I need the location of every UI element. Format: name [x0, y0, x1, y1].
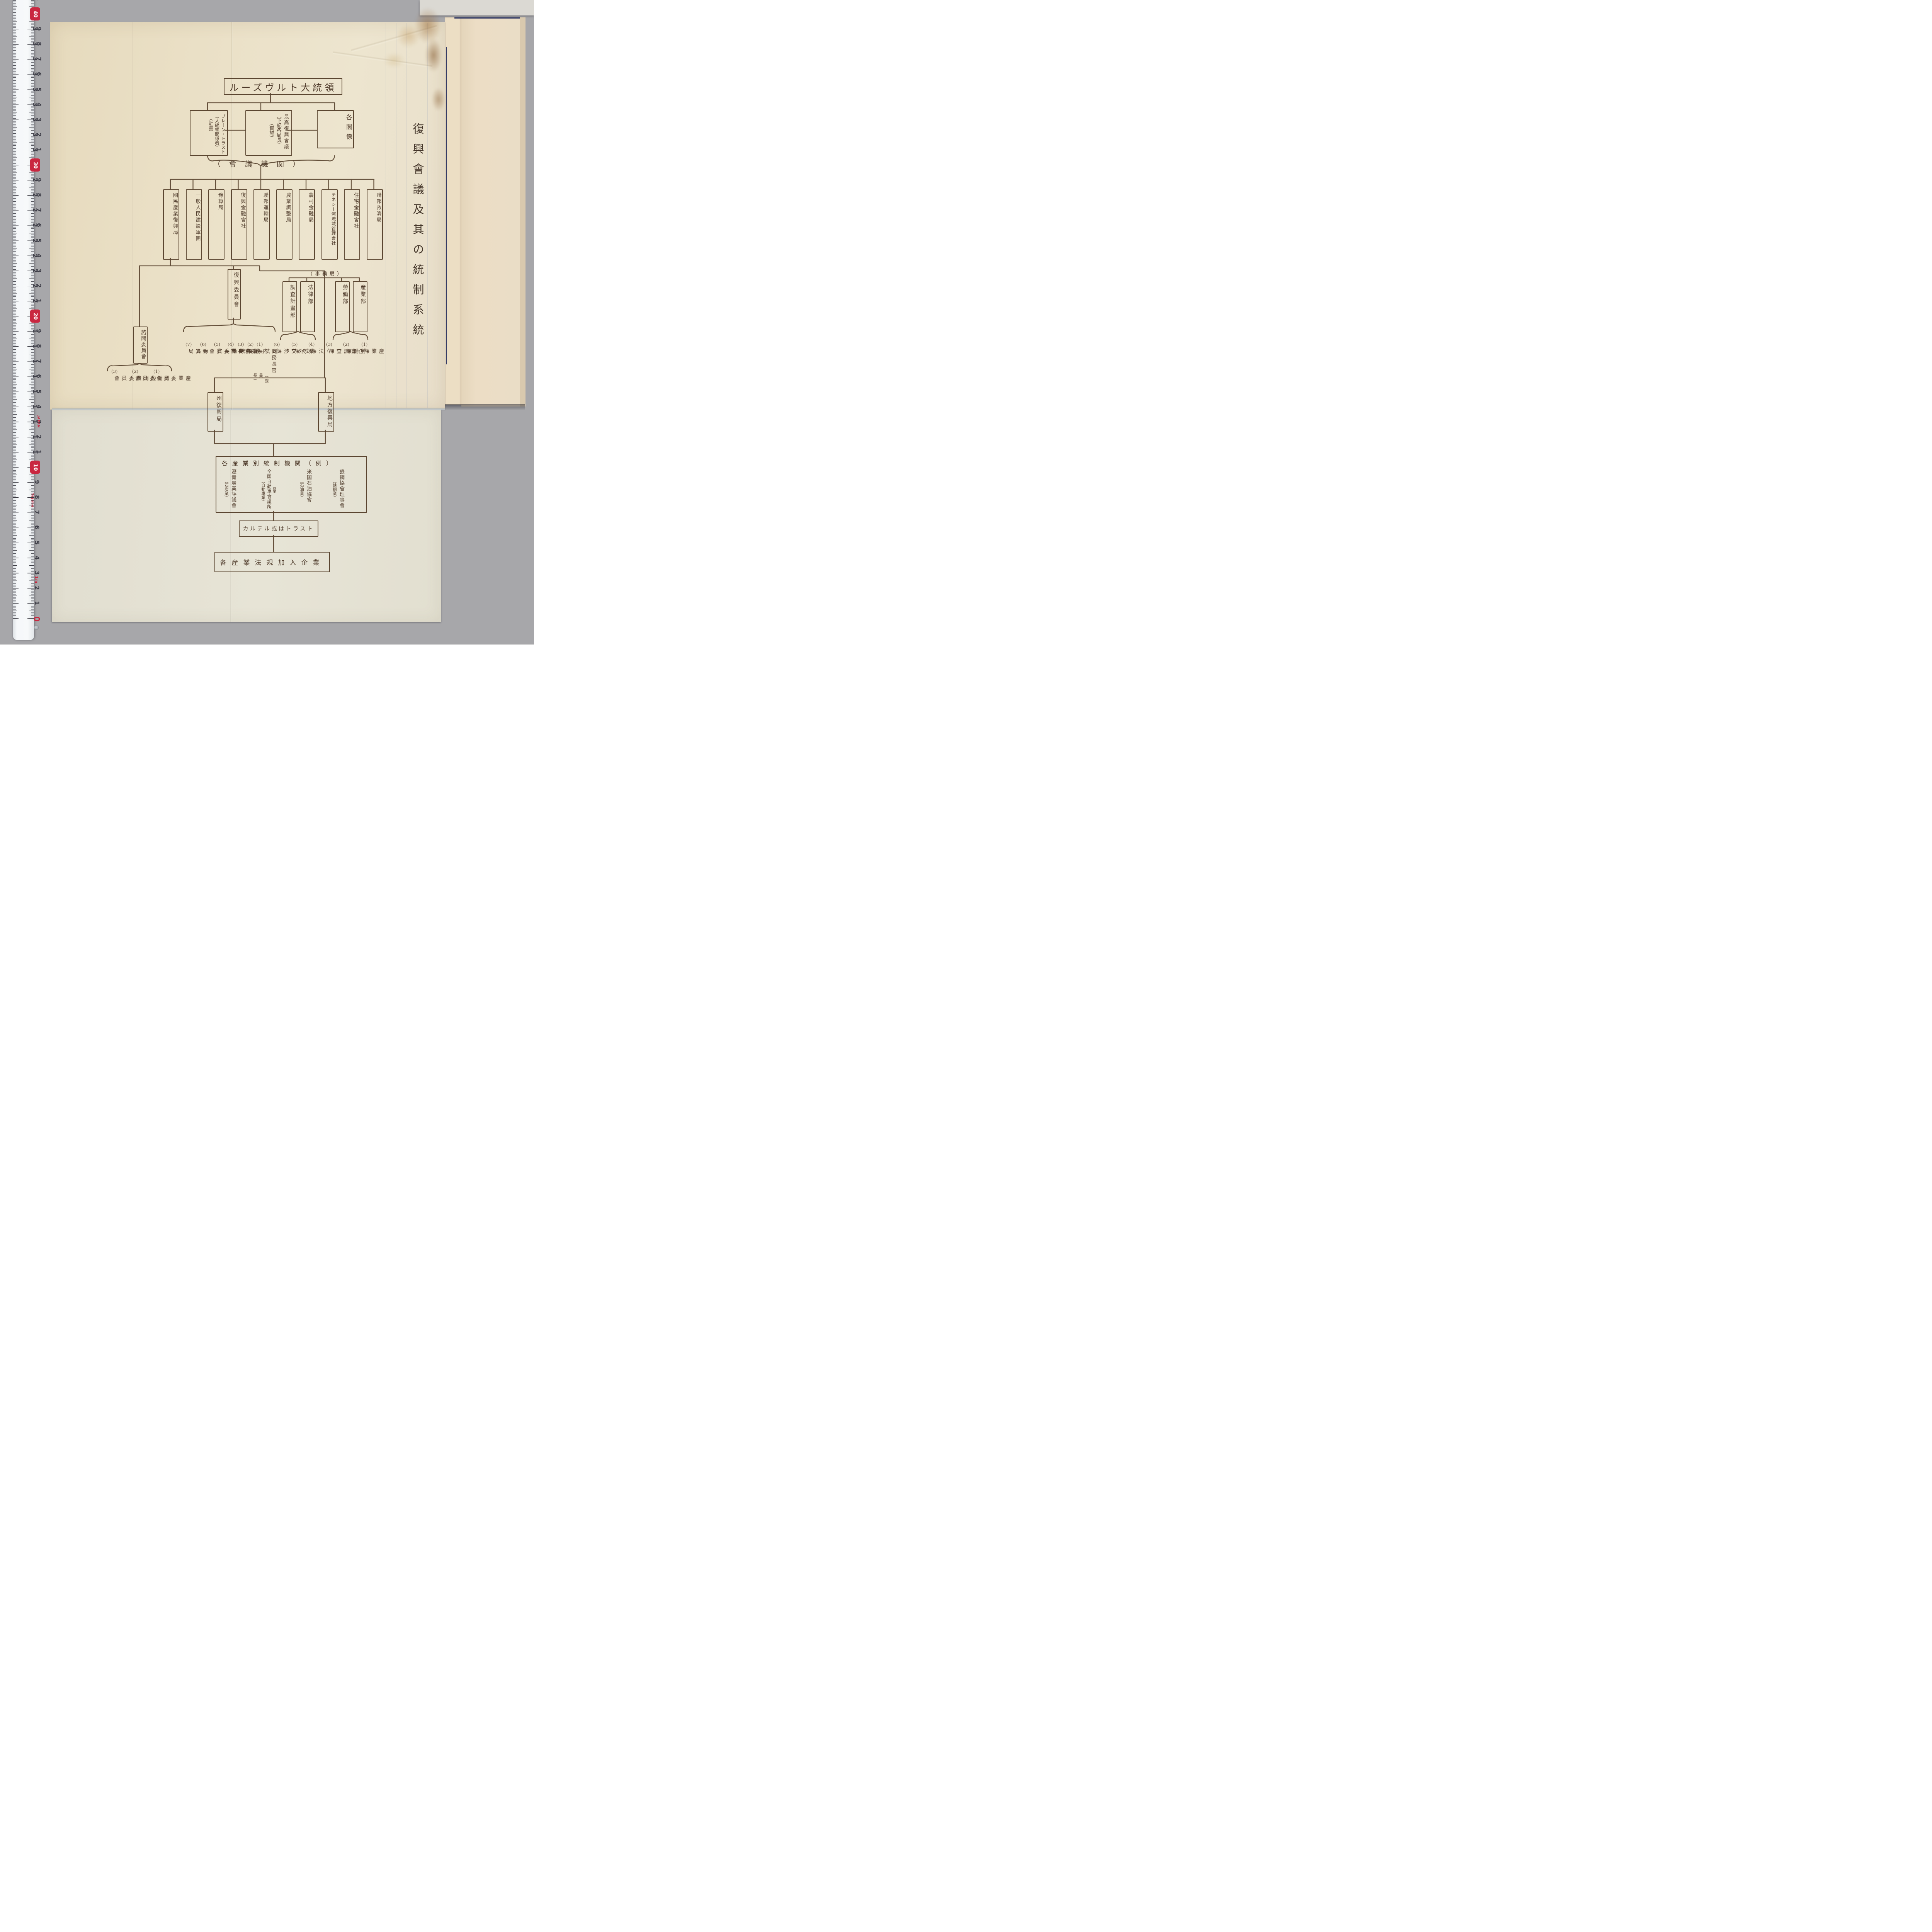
agency-label: 復興金融會社 — [239, 192, 247, 259]
advisory-board-number: (3) — [111, 369, 117, 374]
industry-entry-industry: （鉄鋼業） — [332, 479, 338, 509]
brain-trust-line3: （計畫） — [208, 116, 214, 154]
tape-number: 0 — [34, 615, 39, 623]
agency-box: 聯邦救濟局 — [367, 189, 383, 260]
dept-section-label: 對外交渉課 — [275, 349, 311, 355]
tape-number: 7 — [34, 509, 39, 515]
box-advisory-committee: 諮問委員會 — [133, 327, 148, 364]
supreme-council-line2: （下記各局長） — [275, 113, 282, 154]
tape-digit: 0 — [33, 616, 41, 622]
dept-section-number: (6) — [274, 342, 280, 347]
department-label: 調査計畫部 — [289, 284, 296, 332]
industry-entry-name: 全国自動車會議所商業 — [266, 469, 272, 509]
tape-digit: 2 — [34, 586, 40, 590]
dept-section-label: 企畫調査課 — [327, 349, 364, 355]
dept-section-number: (1) — [361, 342, 367, 347]
department-label: 法律部 — [306, 284, 314, 332]
agency-label: 豫算局 — [216, 192, 224, 259]
tape-digit: 4 — [36, 405, 42, 408]
tape-number: 2 — [34, 585, 39, 591]
tape-number: 23 — [31, 268, 42, 274]
advisory-committee-label: 諮問委員會 — [139, 330, 147, 363]
tape-digit: 7 — [36, 208, 42, 212]
tape-red-number: 30 — [30, 158, 40, 172]
tape-digit: 4 — [36, 102, 42, 106]
tape-digit: 3 — [36, 117, 42, 121]
advisory-board-item: 一般消費委員會 — [112, 376, 164, 382]
tape-number: 12 — [31, 434, 42, 440]
tape-digit: 5 — [36, 238, 42, 242]
state-bureau-label: 州復興局 — [215, 395, 223, 431]
agency-label: 一般人民建設軍團 — [194, 192, 201, 259]
agency-label: 聯邦運輸局 — [262, 192, 269, 259]
tape-number: 1 — [34, 600, 39, 606]
tape-digit: 9 — [36, 329, 42, 333]
agency-label: 聯邦救濟局 — [375, 192, 382, 259]
dept-section-number: (4) — [308, 342, 315, 347]
dept-section-number: (5) — [291, 342, 298, 347]
tape-number: 6 — [34, 524, 39, 530]
tape-number: 17 — [31, 358, 42, 364]
agency-box: 農村金融局 — [299, 189, 315, 260]
enterprises-label: 各産業法規加入企業 — [220, 557, 325, 567]
agency-label: 農業調整局 — [284, 192, 292, 259]
agency-box: 住宅金融會社 — [344, 189, 360, 260]
president-label: ルーズヴルト大統領 — [230, 80, 337, 94]
tape-red-number: 20 — [30, 310, 40, 323]
industry-organs-title: 各産業別統制機関（例） — [222, 459, 337, 467]
connector-lines — [0, 0, 534, 645]
agency-box: 一般人民建設軍團 — [186, 189, 202, 260]
tape-red-number-text: 40 — [33, 10, 38, 17]
tape-number: 8 — [34, 494, 39, 500]
industry-entry-name: 鉄鋼協會理事會 — [338, 469, 345, 509]
tape-number: 37 — [31, 56, 42, 62]
committee-member-number: (7) — [185, 342, 192, 347]
box-brain-trust: ブレーン・トラスト （大統領関係者） （計畫） — [190, 110, 228, 156]
agency-label: テネシー河流域管理會社 — [331, 192, 337, 259]
council-organ-label: （會議機関） — [213, 158, 308, 169]
tape-red-number: 40 — [30, 7, 40, 20]
committee-member-sublabel: （委員長） — [252, 373, 270, 384]
tape-number: 28 — [31, 192, 42, 198]
advisory-board-label: 一般消費委員會 — [112, 376, 164, 382]
local-bureau-label: 地方復興局 — [326, 395, 333, 431]
tape-brand-label: Tajima — [30, 493, 34, 508]
tape-digit: 3 — [34, 571, 40, 575]
agency-box: 豫算局 — [208, 189, 224, 260]
tape-number: 4 — [34, 555, 39, 561]
tape-meter-label: 1m — [34, 576, 38, 583]
tape-digit: 2 — [36, 435, 42, 439]
committee-member-number: (4) — [228, 342, 234, 347]
committee-member-number: (2) — [247, 342, 253, 347]
tape-digit: 4 — [34, 556, 40, 560]
industry-entry-insert: 商業 — [272, 487, 277, 493]
tape-number: 16 — [31, 373, 42, 379]
department-box: 法律部 — [300, 281, 315, 332]
tape-number: 25 — [31, 238, 42, 243]
brain-trust-line2: （大統領関係者） — [214, 114, 220, 154]
secretariat-label: （事務局） — [308, 270, 344, 277]
box-enterprises: 各産業法規加入企業 — [214, 552, 330, 572]
box-cartel: カルテル或はトラスト — [239, 520, 318, 537]
tape-number: 5 — [34, 540, 39, 546]
measuring-tape: 0123456789101112131415161718192021222324… — [13, 0, 34, 640]
industry-entry-name: 米国石油協會 — [305, 469, 312, 509]
scanned-document-scene: ルーズヴルト大統領 ブレーン・トラスト （大統領関係者） （計畫） 最高復興會議… — [0, 0, 534, 645]
tape-red-number: 10 — [30, 461, 40, 474]
industry-entry-name: 瀝青炭業評議會 — [230, 469, 237, 509]
tape-digit: 1 — [36, 299, 42, 303]
tape-number: 15 — [31, 389, 42, 395]
tape-number: 31 — [31, 147, 42, 153]
tape-digit: 9 — [36, 27, 42, 31]
tape-number: 32 — [31, 132, 42, 138]
tape-number: 21 — [31, 298, 42, 304]
tape-number: 35 — [31, 87, 42, 92]
tape-digit: 6 — [36, 72, 42, 76]
department-box: 調査計畫部 — [282, 281, 297, 332]
agency-label: 農村金融局 — [307, 192, 314, 259]
tape-number: 27 — [31, 207, 42, 213]
tape-digit: 8 — [36, 42, 42, 46]
tape-number: 29 — [31, 177, 42, 183]
industry-entry-industry: （石油業） — [299, 479, 305, 509]
department-label: 勞働部 — [341, 284, 349, 332]
supreme-council-line3: （實施） — [268, 121, 275, 154]
cabinet-label: 各閣僚 — [344, 114, 353, 148]
committee-member-number: (1) — [257, 342, 263, 347]
department-box: 産業部 — [353, 281, 367, 332]
agency-box: テネシー河流域管理會社 — [321, 189, 338, 260]
tape-number: 34 — [31, 102, 42, 107]
tape-digit: 8 — [34, 495, 40, 499]
tape-digit: 5 — [36, 87, 42, 91]
tape-digit: 8 — [36, 344, 42, 348]
agency-box: 聯邦運輸局 — [253, 189, 270, 260]
tape-digit: 1 — [34, 601, 40, 605]
tape-digit: 6 — [36, 374, 42, 378]
agency-label: 國民産業復興局 — [171, 192, 179, 259]
industry-entry-industry: （石炭業） — [224, 479, 230, 509]
committee-member-number: (5) — [214, 342, 220, 347]
industry-entry: 全国自動車會議所商業（自動車業） — [260, 469, 272, 509]
committee-member-number: (3) — [238, 342, 244, 347]
industry-entry: 鉄鋼協會理事會（鉄鋼業） — [332, 469, 345, 509]
tape-digit: 1 — [36, 450, 42, 454]
tape-number: 3 — [34, 570, 39, 576]
tape-digit: 7 — [36, 57, 42, 61]
advisory-board-number: (2) — [132, 369, 138, 374]
document-title: 復興會議及其の統制系統 — [410, 123, 426, 344]
committee-member-label: 聯邦商業委員會 — [207, 349, 259, 355]
industry-entry: 米国石油協會（石油業） — [299, 469, 312, 509]
tape-number: 19 — [31, 328, 42, 334]
tape-digit: 1 — [36, 148, 42, 151]
tape-digit: 7 — [34, 510, 40, 514]
tape-digit: 6 — [36, 223, 42, 227]
tape-digit: 7 — [36, 359, 42, 363]
tape-digit: 9 — [36, 178, 42, 182]
cartel-label: カルテル或はトラスト — [243, 525, 315, 532]
tape-number: 41 — [31, 0, 42, 2]
tape-digit: 6 — [34, 526, 40, 529]
tape-number: 38 — [31, 41, 42, 47]
dept-section-number: (3) — [326, 342, 332, 347]
tape-digit: 2 — [36, 284, 42, 287]
tape-number: 26 — [31, 222, 42, 228]
box-cabinet: 各閣僚 — [317, 110, 354, 148]
tape-red-number-text: 30 — [33, 162, 38, 168]
tape-digit: 2 — [36, 133, 42, 136]
box-president: ルーズヴルト大統領 — [224, 78, 342, 95]
tape-digit: 3 — [36, 269, 42, 272]
tape-digit: 1 — [36, 0, 42, 1]
tape-digit: 4 — [36, 253, 42, 257]
tape-number: 24 — [31, 253, 42, 259]
brain-trust-line1: ブレーン・トラスト — [220, 114, 226, 154]
dept-section-number: (2) — [343, 342, 349, 347]
industry-entry: 瀝青炭業評議會（石炭業） — [224, 469, 237, 509]
agency-box: 國民産業復興局 — [163, 189, 179, 260]
tape-number: 33 — [31, 117, 42, 122]
tape-rivet-hole — [34, 625, 39, 630]
supreme-council-line1: 最高復興會議 — [282, 114, 290, 154]
agency-box: 農業調整局 — [276, 189, 293, 260]
box-supreme-council: 最高復興會議 （下記各局長） （實施） — [245, 110, 292, 156]
tape-digit: 5 — [36, 389, 42, 393]
tape-digit: 8 — [36, 193, 42, 197]
tape-ticks-left — [13, 0, 20, 620]
tape-digit: 5 — [34, 541, 40, 544]
committee-member-item: 豫算局 — [187, 349, 209, 355]
tape-digit: 9 — [34, 480, 40, 484]
dept-section-item: 對外交渉課 — [275, 349, 311, 355]
committee-member-number: (6) — [200, 342, 206, 347]
tape-origin-label: JAPAN — [37, 415, 41, 428]
box-recovery-committee: 復興委員會 — [228, 269, 241, 320]
tape-number: 36 — [31, 71, 42, 77]
tape-number: 11 — [31, 449, 42, 455]
department-box: 勞働部 — [335, 281, 350, 332]
tape-red-number-text: 10 — [33, 464, 38, 471]
advisory-board-number: (1) — [153, 369, 160, 374]
recovery-committee-label: 復興委員會 — [232, 272, 240, 319]
tape-number: 9 — [34, 479, 39, 485]
committee-member-label: 豫算局 — [187, 349, 209, 355]
tape-number: 39 — [31, 26, 42, 32]
tape-number: 22 — [31, 283, 42, 289]
box-local-bureau: 地方復興局 — [318, 392, 334, 432]
tape-red-number-text: 20 — [33, 313, 38, 320]
box-state-bureau: 州復興局 — [207, 392, 223, 432]
tape-number: 14 — [31, 404, 42, 410]
dept-section-item: 企畫調査課 — [327, 349, 364, 355]
tape-number: 18 — [31, 343, 42, 349]
department-label: 産業部 — [359, 284, 367, 332]
agency-box: 復興金融會社 — [231, 189, 247, 260]
agency-label: 住宅金融會社 — [352, 192, 359, 259]
industry-entry-industry: （自動車業） — [260, 479, 266, 509]
